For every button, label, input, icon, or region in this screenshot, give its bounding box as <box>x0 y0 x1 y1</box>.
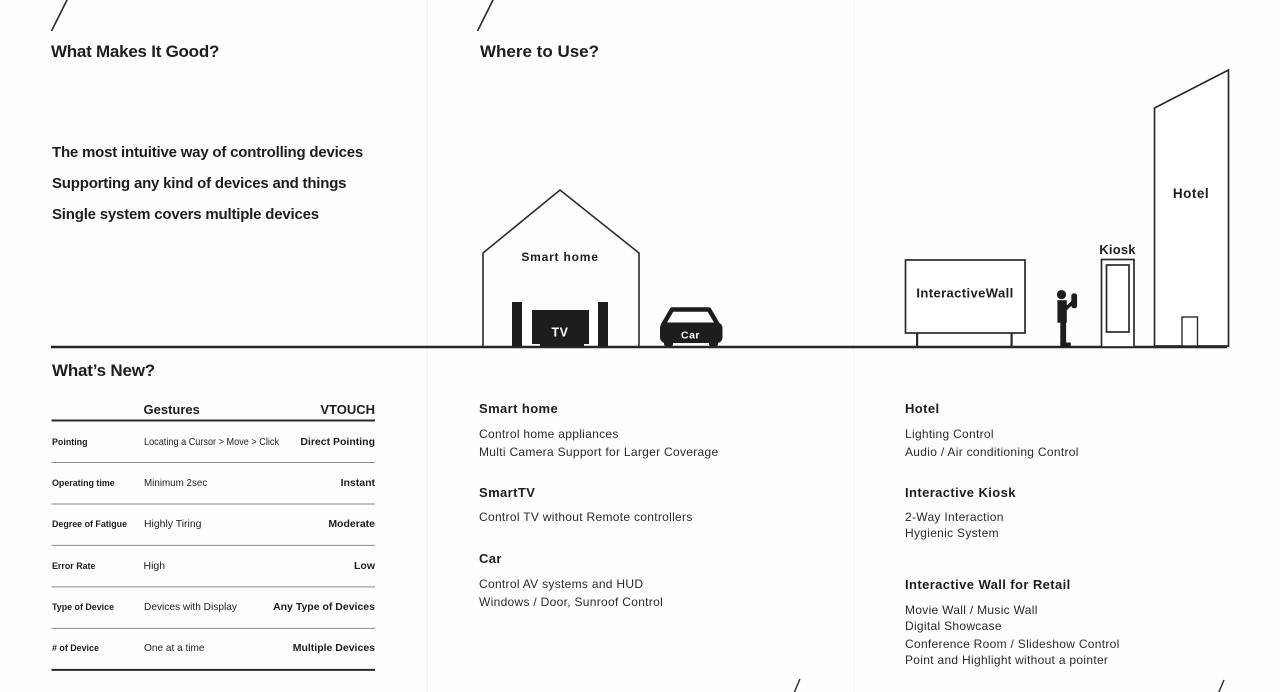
svg-text:InteractiveWall: InteractiveWall <box>916 286 1013 301</box>
svg-text:TV: TV <box>552 326 569 340</box>
svg-text:Car: Car <box>681 330 700 342</box>
